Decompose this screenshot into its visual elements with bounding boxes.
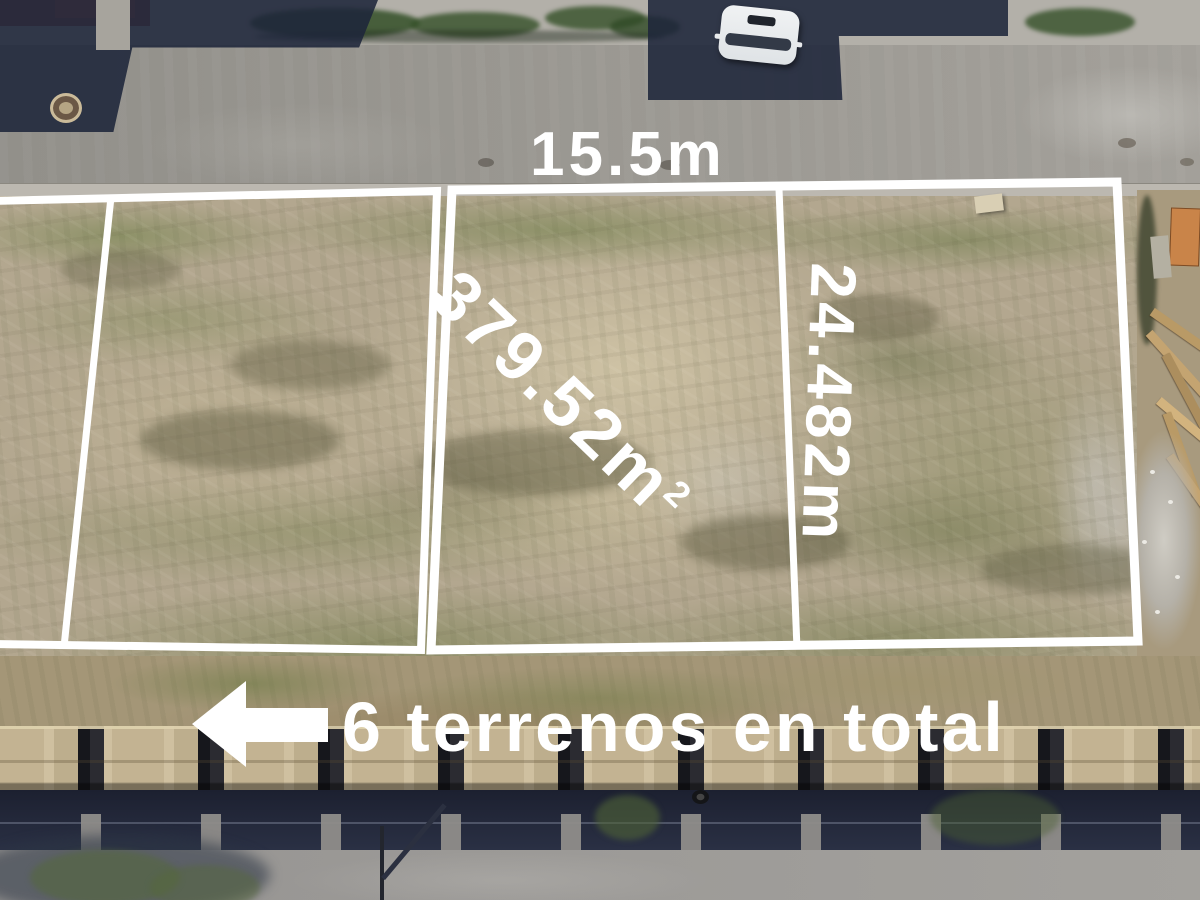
hedge-bush	[1025, 8, 1135, 36]
light-notch	[801, 814, 821, 850]
utility-pole	[380, 826, 384, 900]
brush-patch	[230, 340, 390, 390]
depth-label: 24.482m	[792, 262, 866, 545]
car-mirror	[795, 42, 802, 48]
arrow-head	[192, 681, 246, 767]
rubble-speck	[1168, 500, 1173, 504]
rubble-speck	[1150, 470, 1155, 474]
light-notch	[561, 814, 581, 850]
discarded-tire	[692, 790, 709, 804]
road-stain	[478, 158, 494, 167]
rubble-speck	[1155, 610, 1160, 614]
light-notch	[441, 814, 461, 850]
light-notch	[681, 814, 701, 850]
car-mirror	[714, 33, 721, 39]
parked-car	[717, 4, 800, 66]
road-stain	[1118, 138, 1136, 148]
light-notch	[321, 814, 341, 850]
front-width-label: 15.5m	[530, 124, 726, 186]
brush-patch	[140, 410, 340, 470]
aerial-lots-photo: 15.5m 379.52m2 24.482m 6 terrenos en tot…	[0, 0, 1200, 900]
green-tuft	[595, 795, 660, 840]
car-windshield	[725, 33, 792, 52]
light-notch	[1161, 814, 1181, 850]
brush-patch	[60, 250, 180, 290]
road-stain	[1180, 158, 1194, 166]
rubble-pile	[1126, 430, 1200, 650]
rubble-speck	[1142, 540, 1147, 544]
board-sheet	[1150, 235, 1172, 278]
rubble-speck	[1175, 575, 1180, 579]
arrow-shaft	[244, 708, 328, 742]
shadow-gap-light	[96, 0, 130, 50]
car-sunroof	[747, 15, 776, 27]
total-lots-label: 6 terrenos en total	[342, 692, 1006, 762]
manhole-cover	[50, 93, 82, 123]
plywood-sheet	[1169, 207, 1200, 266]
rubble-object	[974, 193, 1004, 213]
green-tuft	[930, 790, 1060, 845]
